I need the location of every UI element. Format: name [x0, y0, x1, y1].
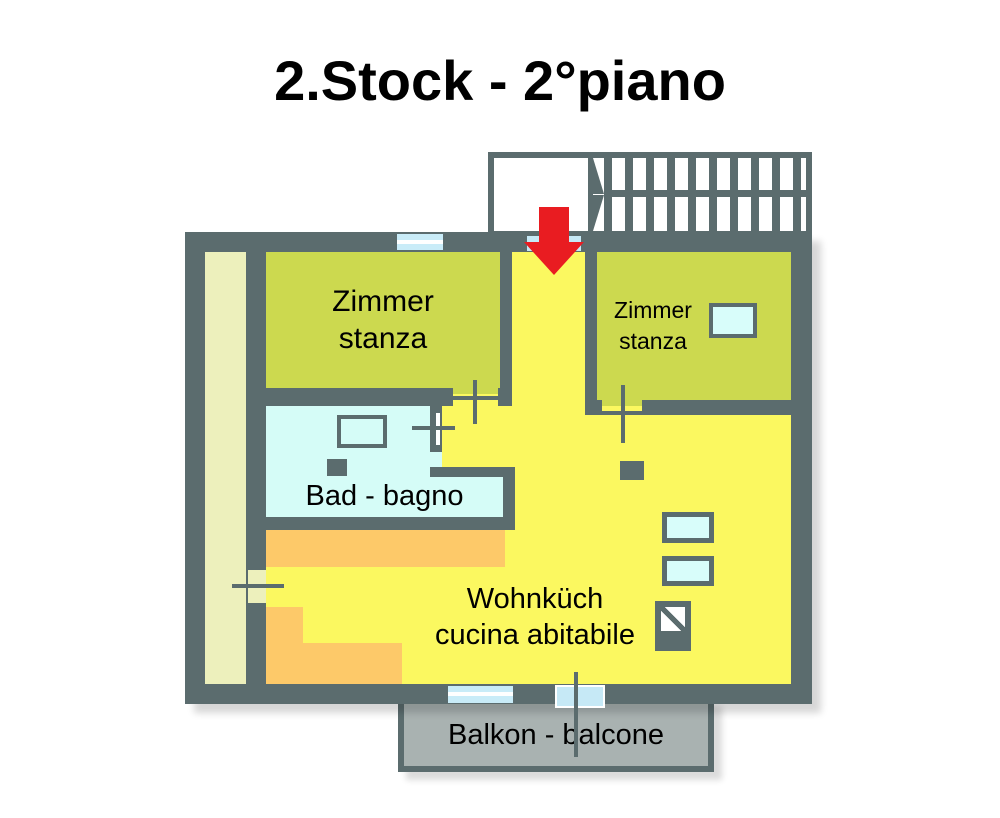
bottom-wall-window	[448, 686, 513, 703]
building-outline: Zimmer stanza Zimmer stanza Bad - bagno …	[185, 232, 812, 704]
bathroom-bottom-wall	[246, 517, 515, 530]
balcony-door-window	[555, 685, 605, 708]
dimension-cross	[598, 411, 652, 415]
zimmer-right-label: Zimmer stanza	[597, 252, 709, 400]
floor-plan-page: 2.Stock - 2°piano Balkon - balcone	[0, 0, 1000, 818]
dimension-cross	[232, 584, 284, 588]
entrance-arrow-icon	[539, 207, 569, 243]
inner-left-wall	[246, 252, 266, 684]
stair-treads	[604, 158, 806, 231]
page-title: 2.Stock - 2°piano	[0, 48, 1000, 113]
balcony-label: Balkon - balcone	[448, 719, 664, 752]
kitchen-fixture-icon	[662, 512, 714, 543]
stair-direction-wedge-icon	[588, 158, 604, 231]
dimension-line	[574, 672, 578, 757]
living-kitchen-label: Wohnküch cucina abitabile	[335, 582, 735, 652]
stair-mid-rail	[604, 190, 806, 197]
stair-flight-lower-step	[266, 607, 303, 643]
stair-treads-upper	[604, 158, 806, 190]
exterior-staircase	[488, 152, 812, 237]
dimension-cross	[432, 410, 436, 450]
living-kitchen-label-line1: Wohnküch	[467, 581, 604, 617]
stair-treads-lower	[604, 197, 806, 231]
balcony: Balkon - balcone	[398, 698, 714, 772]
side-strip	[205, 252, 246, 684]
zimmer-left-label-line2: stanza	[339, 320, 427, 357]
top-wall-window	[397, 234, 443, 250]
zimmer-left-label: Zimmer stanza	[266, 252, 500, 388]
zimmer-right-label-line2: stanza	[619, 326, 687, 357]
zimmer-right-window-icon	[709, 303, 757, 338]
bathroom-label: Bad - bagno	[266, 475, 503, 517]
toilet-icon	[327, 459, 347, 476]
zimmer-right-label-line1: Zimmer	[614, 295, 692, 326]
zimmer-left-label-line1: Zimmer	[332, 283, 434, 320]
entrance-arrow-head-icon	[524, 242, 584, 275]
stair-flight-upper	[266, 530, 505, 567]
column-icon	[620, 461, 644, 480]
living-kitchen-label-line2: cucina abitabile	[435, 617, 635, 653]
bathtub-icon	[337, 415, 387, 448]
corridor-right-wall	[585, 252, 597, 405]
corridor-left-wall	[500, 252, 512, 388]
bathroom-label-text: Bad - bagno	[305, 480, 463, 513]
